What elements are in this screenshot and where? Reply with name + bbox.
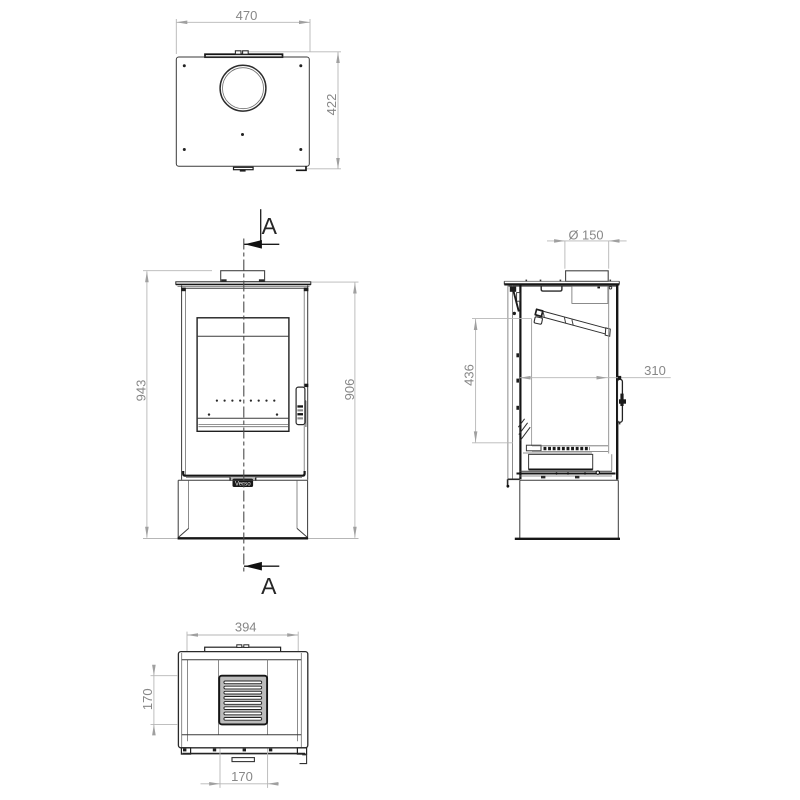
svg-text:470: 470 [236,8,258,23]
svg-text:422: 422 [324,94,339,116]
svg-text:A: A [262,213,278,239]
svg-text:943: 943 [134,380,149,402]
svg-text:906: 906 [342,379,357,401]
svg-text:394: 394 [235,620,257,635]
svg-text:170: 170 [140,688,155,710]
svg-text:436: 436 [462,364,477,386]
svg-text:170: 170 [231,769,253,784]
svg-text:Ø 150: Ø 150 [569,228,604,243]
svg-text:310: 310 [644,363,666,378]
svg-text:Verso: Verso [235,480,251,487]
svg-text:A: A [261,573,277,599]
